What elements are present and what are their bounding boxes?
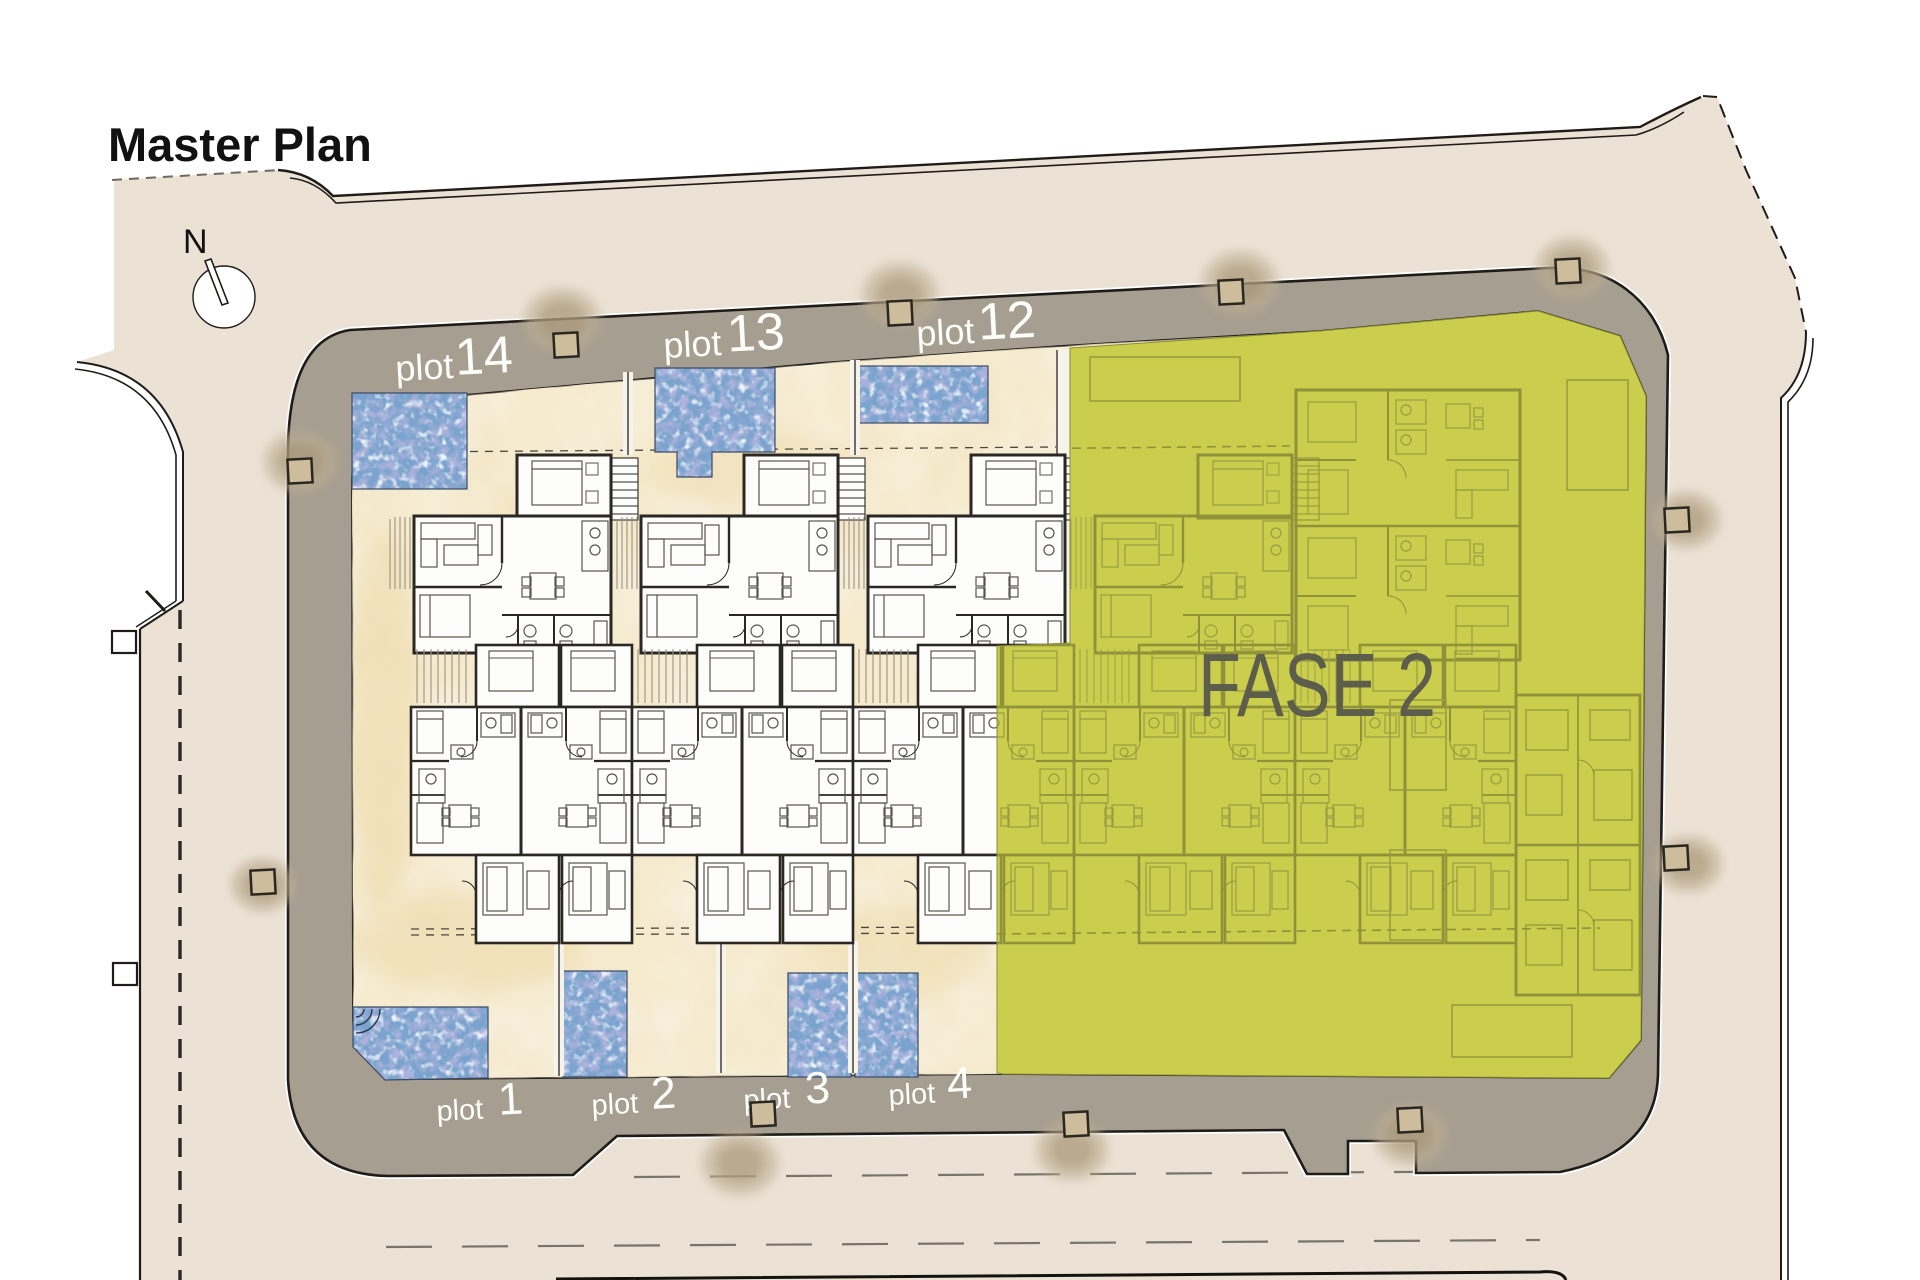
svg-text:plot: plot bbox=[436, 1094, 484, 1128]
svg-text:4: 4 bbox=[946, 1057, 974, 1109]
svg-text:12: 12 bbox=[976, 291, 1037, 352]
svg-text:14: 14 bbox=[453, 326, 514, 387]
svg-text:13: 13 bbox=[725, 303, 786, 364]
svg-text:N: N bbox=[183, 223, 208, 261]
svg-text:plot: plot bbox=[591, 1088, 639, 1122]
svg-text:plot: plot bbox=[888, 1078, 936, 1112]
svg-text:3: 3 bbox=[804, 1062, 832, 1114]
svg-text:1: 1 bbox=[497, 1073, 525, 1125]
svg-text:2: 2 bbox=[650, 1067, 678, 1119]
svg-text:plot: plot bbox=[662, 322, 722, 366]
svg-text:Master Plan: Master Plan bbox=[108, 118, 372, 171]
svg-text:FASE 2: FASE 2 bbox=[1198, 636, 1436, 736]
svg-text:plot: plot bbox=[394, 345, 454, 389]
